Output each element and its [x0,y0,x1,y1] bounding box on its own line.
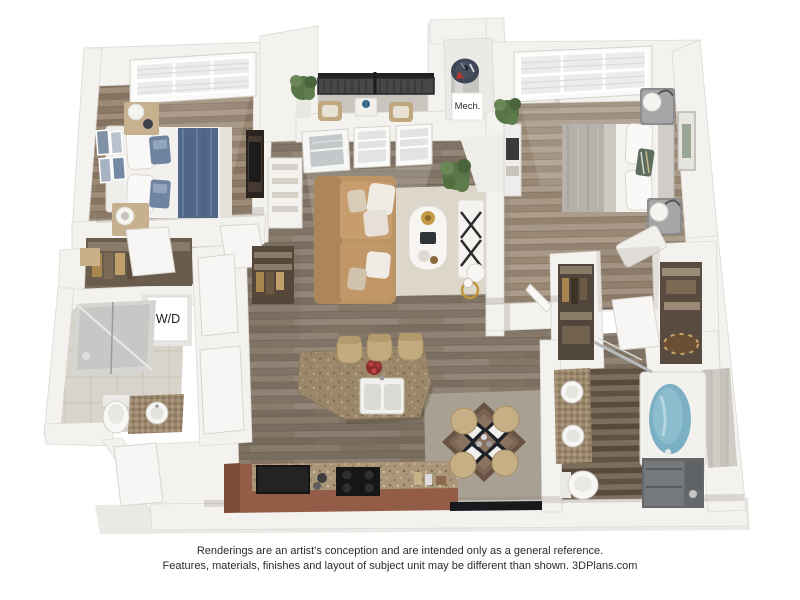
svg-text:Mech.: Mech. [455,101,481,112]
svg-text:W/D: W/D [156,312,180,326]
